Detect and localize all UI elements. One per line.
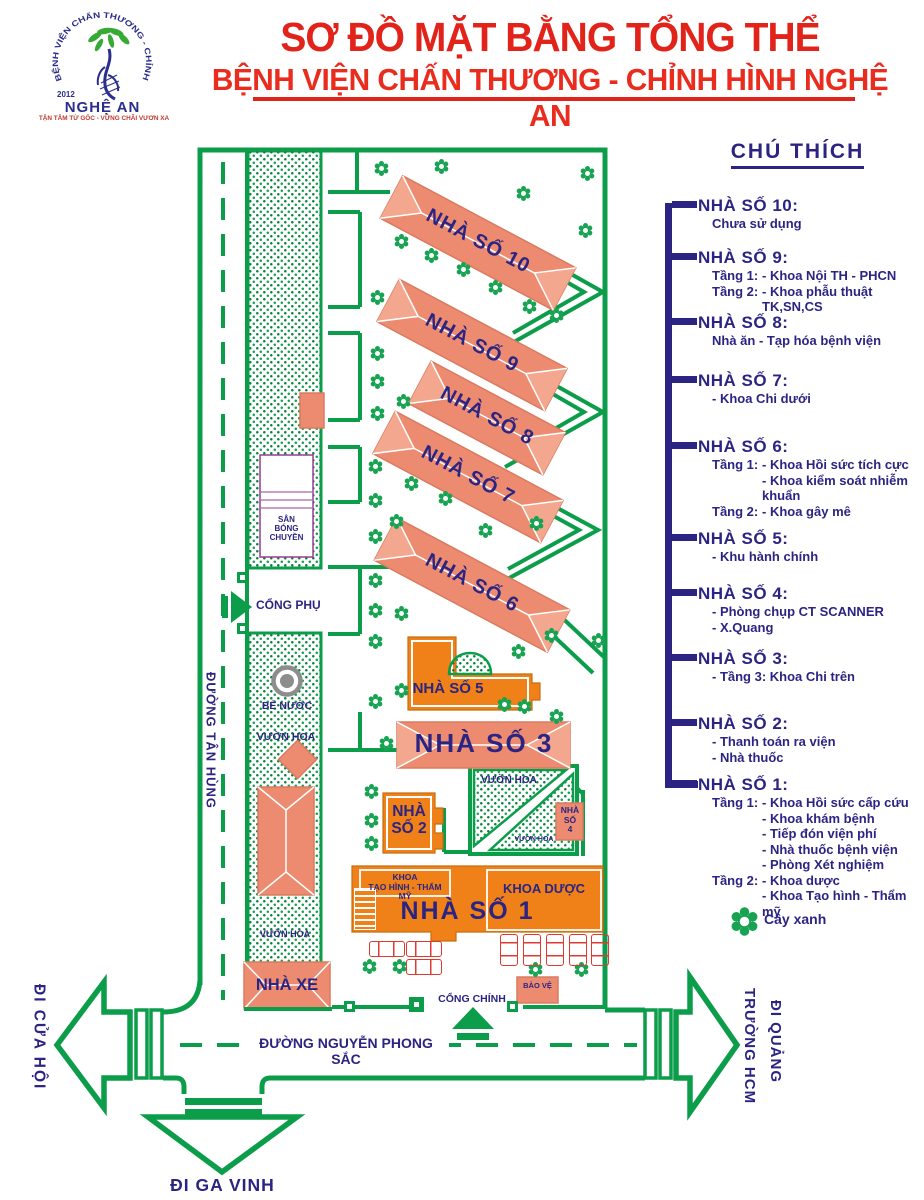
legend-tick xyxy=(672,376,697,383)
legend-tick xyxy=(672,589,697,596)
tree-icon xyxy=(372,533,379,540)
legend-item-title: NHÀ SỐ 3: xyxy=(698,649,922,669)
tree-icon xyxy=(374,410,381,417)
direction-label-quang-truong-1: ĐI QUẢNG xyxy=(766,1000,783,1083)
legend-item-line: Tầng 1:- Khoa Hồi sức tích cực xyxy=(698,457,922,473)
legend-item-line: - Phòng chụp CT SCANNER xyxy=(698,604,922,620)
legend-item-line: - Phòng Xét nghiệm xyxy=(698,857,922,873)
main-gate-label: CỔNG CHÍNH xyxy=(438,994,506,1006)
tree-icon xyxy=(393,518,400,525)
legend-bracket xyxy=(665,203,672,788)
legend-item-title: NHÀ SỐ 1: xyxy=(698,775,922,795)
tree-icon xyxy=(378,165,385,172)
legend-tick xyxy=(672,780,697,787)
legend-item-title: NHÀ SỐ 10: xyxy=(698,196,922,216)
legend-item-title: NHÀ SỐ 6: xyxy=(698,437,922,457)
car-icon xyxy=(406,959,442,975)
tree-icon xyxy=(595,637,602,644)
tree-icon xyxy=(374,294,381,301)
tree-icon xyxy=(372,497,379,504)
legend-item: NHÀ SỐ 2:- Thanh toán ra viện- Nhà thuốc xyxy=(698,714,922,765)
tree-icon xyxy=(515,648,522,655)
volleyball-court-label: SÂNBÓNG CHUYỀN xyxy=(259,516,314,543)
legend-tick xyxy=(672,318,697,325)
legend-item-line: Nhà ăn - Tạp hóa bệnh viện xyxy=(698,333,922,349)
tree-icon xyxy=(372,463,379,470)
legend-item: NHÀ SỐ 3:- Tầng 3: Khoa Chi trên xyxy=(698,649,922,685)
direction-label-cua-hoi: ĐI CỬA HỘI xyxy=(30,984,47,1090)
tree-icon xyxy=(482,527,489,534)
tree-icon xyxy=(383,740,390,747)
flower-garden-label-1: VƯỜN HOA xyxy=(251,732,321,744)
legend-item-line: - Khu hành chính xyxy=(698,549,922,565)
tree-icon xyxy=(442,495,449,502)
legend-tree-label: Cây xanh xyxy=(764,912,826,928)
legend-tick xyxy=(672,253,697,260)
road-label-nguyen-phong-sac: ĐƯỜNG NGUYỄN PHONG SẮC xyxy=(243,1036,449,1067)
legend-tick xyxy=(672,442,697,449)
legend-item-line: - Tầng 3: Khoa Chi trên xyxy=(698,669,922,685)
legend-item: NHÀ SỐ 5:- Khu hành chính xyxy=(698,529,922,565)
tree-icon xyxy=(368,817,375,824)
legend-tick xyxy=(672,201,697,208)
legend-item-line: Chưa sử dụng xyxy=(698,216,922,232)
flower-garden-label-4: VƯỜN HOA xyxy=(510,836,558,844)
legend-tick xyxy=(672,654,697,661)
side-gate-label: CỔNG PHỤ xyxy=(256,599,321,612)
legend-item-line: - X.Quang xyxy=(698,620,922,636)
tree-icon xyxy=(532,966,539,973)
legend-item: NHÀ SỐ 8:Nhà ăn - Tạp hóa bệnh viện xyxy=(698,313,922,349)
legend-item-line: - Khoa Chi dưới xyxy=(698,391,922,407)
road-nps-bottom-edge xyxy=(163,1078,645,1094)
legend-item-line: Tầng 2:- Khoa phẫu thuật TK,SN,CS xyxy=(698,284,922,315)
legend-item-line: Tầng 1:- Khoa Nội TH - PHCN xyxy=(698,268,922,284)
tree-icon xyxy=(553,312,560,319)
tree-icon xyxy=(366,963,373,970)
legend-item-line: Tầng 1:- Khoa Hồi sức cấp cứu xyxy=(698,795,922,811)
tree-icon xyxy=(526,303,533,310)
legend-item-title: NHÀ SỐ 7: xyxy=(698,371,922,391)
main-gate-arrow-icon xyxy=(452,1007,494,1040)
car-icon xyxy=(591,934,609,966)
tree-icon xyxy=(521,703,528,710)
building-4-label: NHÀSỐ4 xyxy=(557,806,583,835)
tree-icon xyxy=(553,713,560,720)
legend-tick xyxy=(672,719,697,726)
tree-icon xyxy=(374,350,381,357)
tree-icon xyxy=(372,638,379,645)
legend-item-line: - Nhà thuốc xyxy=(698,750,922,766)
legend-item: NHÀ SỐ 1:Tầng 1:- Khoa Hồi sức cấp cứu- … xyxy=(698,775,922,919)
tree-icon xyxy=(501,701,508,708)
tree-icon xyxy=(548,632,555,639)
tree-icon xyxy=(372,698,379,705)
legend-item: NHÀ SỐ 4:- Phòng chụp CT SCANNER- X.Quan… xyxy=(698,584,922,635)
arrow-east-icon xyxy=(676,977,737,1112)
water-tank-label: BỂ NƯỚC xyxy=(255,701,319,713)
legend-item-line: - Thanh toán ra viện xyxy=(698,734,922,750)
car-icon xyxy=(523,934,541,966)
tree-icon xyxy=(400,398,407,405)
car-icon xyxy=(546,934,564,966)
tree-icon xyxy=(398,610,405,617)
guard-house-label: BẢO VỆ xyxy=(517,982,558,990)
tree-icon xyxy=(492,284,499,291)
legend-item-line: Tầng 2:- Khoa dược xyxy=(698,873,922,889)
site-map-poster: SƠ ĐỒ MẶT BẰNG TỔNG THỂ BỆNH VIỆN CHẤN T… xyxy=(0,0,924,1200)
car-icon xyxy=(569,934,587,966)
direction-label-quang-truong-2: TRƯỜNG HCM xyxy=(740,988,757,1104)
strip-small-building xyxy=(300,393,324,428)
tree-icon xyxy=(438,163,445,170)
tree-icon xyxy=(408,480,415,487)
tree-icon xyxy=(396,963,403,970)
arrow-south-icon xyxy=(148,1117,297,1172)
legend-item-title: NHÀ SỐ 9: xyxy=(698,248,922,268)
direction-label-ga-vinh: ĐI GA VINH xyxy=(160,1176,285,1196)
tree-icon xyxy=(582,227,589,234)
bottom-fence xyxy=(244,1007,605,1009)
building-3-label: NHÀ SỐ 3 xyxy=(400,729,568,758)
legend-item-title: NHÀ SỐ 4: xyxy=(698,584,922,604)
south-road-bars xyxy=(185,1098,262,1116)
flower-garden-label-2: VƯỜN HOA xyxy=(256,929,314,939)
tree-icon xyxy=(428,252,435,259)
tree-icon xyxy=(372,577,379,584)
legend-item-title: NHÀ SỐ 5: xyxy=(698,529,922,549)
tree-icon xyxy=(398,687,405,694)
legend-item: NHÀ SỐ 6:Tầng 1:- Khoa Hồi sức tích cực-… xyxy=(698,437,922,519)
legend-item-line: Tầng 2:- Khoa gây mê xyxy=(698,504,922,520)
legend-item-title: NHÀ SỐ 2: xyxy=(698,714,922,734)
tree-icon xyxy=(374,378,381,385)
tree-icon xyxy=(372,607,379,614)
legend-item-line: - Tiếp đón viện phí xyxy=(698,826,922,842)
water-tank-icon xyxy=(274,668,301,695)
building-2-label: NHÀSỐ 2 xyxy=(385,803,433,838)
legend-item-title: NHÀ SỐ 8: xyxy=(698,313,922,333)
car-icon xyxy=(500,934,518,966)
flower-garden-label-3: VƯỜN HOA xyxy=(478,775,540,786)
tree-icon xyxy=(398,238,405,245)
car-icon xyxy=(369,941,405,957)
road-nps-top-edge xyxy=(163,980,200,1012)
legend-tick xyxy=(672,534,697,541)
dept-khoa-duoc-label: KHOA DƯỢC xyxy=(489,882,599,897)
legend-item-line: - Khoa khám bệnh xyxy=(698,811,922,827)
tree-icon xyxy=(460,266,467,273)
legend-item: NHÀ SỐ 7:- Khoa Chi dưới xyxy=(698,371,922,407)
tree-icon xyxy=(584,170,591,177)
tree-icon xyxy=(520,190,527,197)
tree-icon xyxy=(578,966,585,973)
legend-item-line: - Khoa kiểm soát nhiễm khuẩn xyxy=(698,473,922,504)
arrow-west-icon xyxy=(57,982,130,1108)
building-5-label: NHÀ SỐ 5 xyxy=(410,681,486,698)
tree-icon xyxy=(368,840,375,847)
building-1-label: NHÀ SỐ 1 xyxy=(395,897,540,925)
legend-item: NHÀ SỐ 9:Tầng 1:- Khoa Nội TH - PHCNTầng… xyxy=(698,248,922,315)
legend-title: CHÚ THÍCH xyxy=(700,140,895,169)
tree-icon xyxy=(368,788,375,795)
road-label-tan-hung: ĐƯỜNG TÂN HÙNG xyxy=(203,672,218,809)
tree-icon xyxy=(738,915,751,928)
car-icon xyxy=(406,941,442,957)
parking-house-label: NHÀ XE xyxy=(247,976,327,994)
legend-item: NHÀ SỐ 10:Chưa sử dụng xyxy=(698,196,922,232)
legend-item-line: - Nhà thuốc bệnh viện xyxy=(698,842,922,858)
